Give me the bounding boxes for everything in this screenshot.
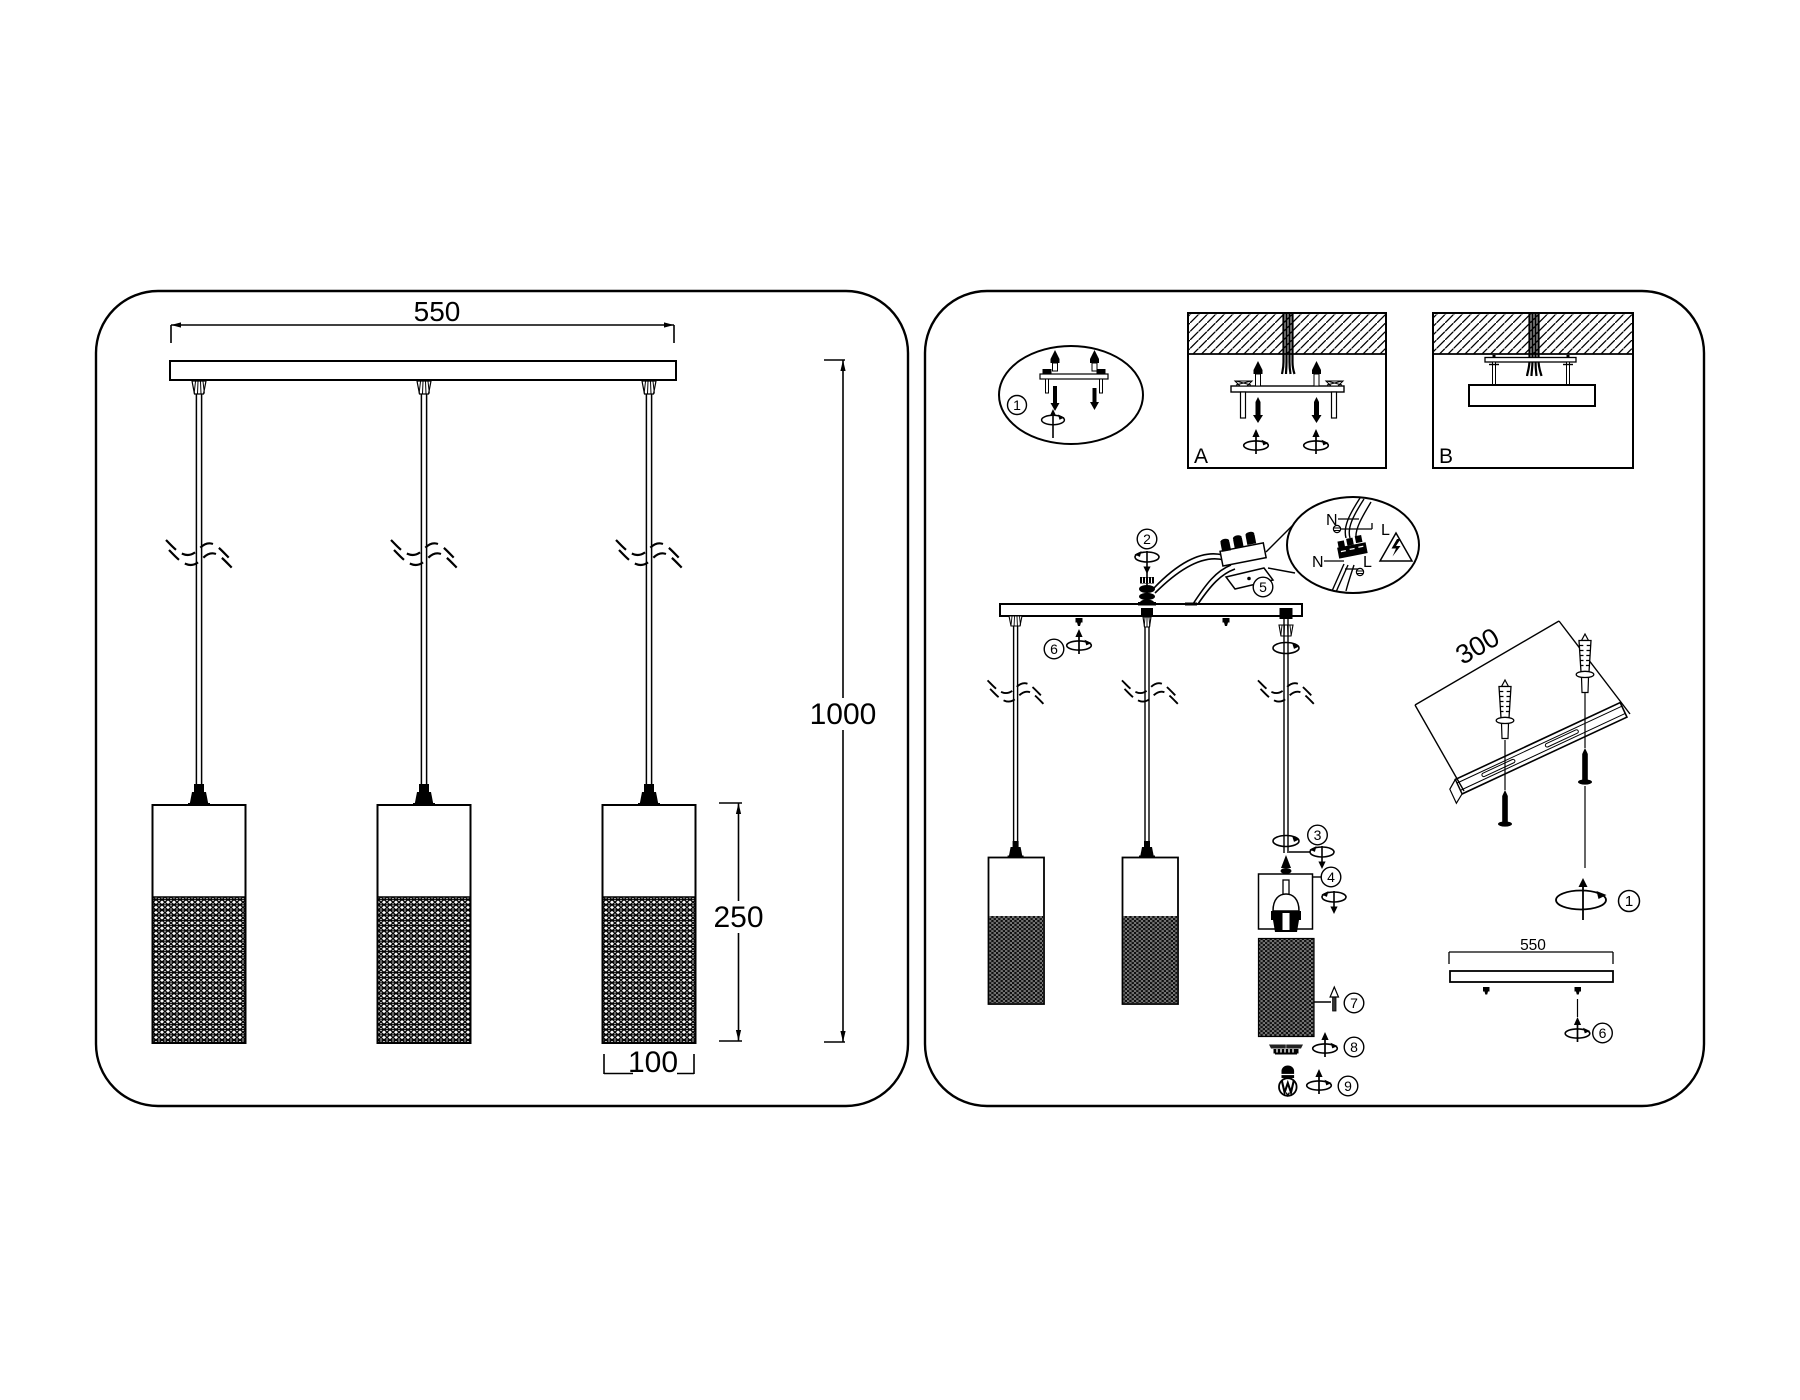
- svg-text:3: 3: [1314, 827, 1322, 843]
- svg-text:8: 8: [1350, 1039, 1358, 1055]
- svg-text:N: N: [1312, 554, 1324, 571]
- svg-text:2: 2: [1143, 531, 1151, 547]
- svg-text:250: 250: [713, 901, 763, 934]
- svg-text:L: L: [1363, 554, 1372, 571]
- svg-text:6: 6: [1599, 1025, 1607, 1041]
- svg-text:1000: 1000: [810, 698, 877, 731]
- svg-text:L: L: [1381, 522, 1390, 539]
- svg-text:7: 7: [1350, 995, 1358, 1011]
- svg-text:9: 9: [1344, 1078, 1352, 1094]
- svg-text:550: 550: [414, 296, 461, 327]
- svg-text:B: B: [1439, 445, 1453, 468]
- svg-text:6: 6: [1050, 641, 1058, 657]
- svg-text:A: A: [1194, 445, 1208, 468]
- svg-text:4: 4: [1327, 869, 1335, 885]
- svg-text:100: 100: [628, 1046, 678, 1079]
- svg-text:1: 1: [1013, 397, 1021, 413]
- svg-text:5: 5: [1259, 579, 1267, 595]
- svg-text:1: 1: [1625, 893, 1633, 910]
